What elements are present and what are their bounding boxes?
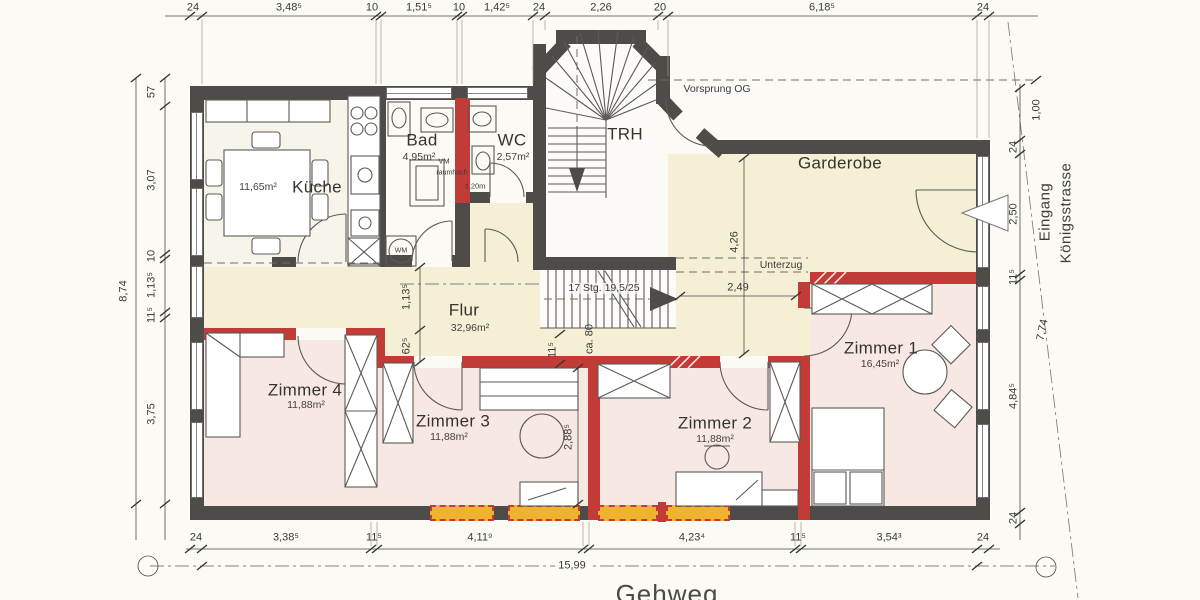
dim-left-total: 8,74: [119, 280, 130, 301]
dim-garderobe-height: 4,26: [730, 231, 741, 252]
vorsprung-og-label: Vorsprung OG: [681, 84, 752, 95]
room-label-bad: Bad: [406, 132, 437, 149]
dim-top-7: 2,26: [590, 3, 611, 14]
room-label-zimmer2: Zimmer 2: [678, 415, 752, 432]
gehweg-label: Gehweg: [616, 581, 719, 600]
room-area-bad: 4,95m²: [403, 152, 436, 163]
dim-right-2: 2,50: [1009, 203, 1020, 224]
room-label-wc: WC: [498, 132, 527, 149]
room-label-zimmer4: Zimmer 4: [268, 382, 342, 399]
stair-spec: 17 Stg. 19,5/25: [566, 283, 641, 294]
zimmer1-furniture: [812, 284, 972, 506]
eingang-label: Eingang: [1038, 183, 1053, 242]
dim-top-3: 1,51⁵: [406, 3, 432, 14]
zimmer3-furniture: [383, 363, 578, 506]
room-label-kueche: Küche: [292, 179, 342, 196]
dim-left-0: 57: [147, 86, 158, 98]
room-area-zimmer3: 11,88m²: [430, 432, 468, 443]
dim-bottom-0: 24: [190, 533, 202, 544]
room-label-trh: TRH: [607, 126, 643, 143]
dim-top-1: 3,48⁵: [276, 3, 302, 14]
dim-flur-left: 1,13⁵: [402, 284, 413, 310]
dim-top-5: 1,42⁵: [484, 3, 510, 14]
vm-note: raumhoch: [436, 170, 467, 177]
dim-right-0: 1,00: [1032, 99, 1043, 120]
plan-linework: [0, 0, 1200, 600]
dim-right-1: 24: [1009, 141, 1020, 153]
dim-zimmer3-height: 2,88⁵: [564, 424, 575, 450]
dim-left-4: 11⁵: [147, 307, 158, 323]
dim-top-10: 24: [977, 3, 989, 14]
dim-top-8: 20: [654, 3, 666, 14]
room-label-flur: Flur: [449, 302, 479, 319]
flur-stair: [540, 270, 678, 328]
dim-top-6: 24: [533, 3, 545, 14]
dim-passage-11: 11⁵: [548, 342, 559, 358]
room-area-flur: 32,96m²: [451, 323, 490, 334]
dim-left-3: 1,13⁵: [147, 272, 158, 298]
room-area-wc: 2,57m²: [497, 152, 530, 163]
room-label-garderobe: Garderobe: [798, 155, 882, 172]
washing-machine-label: WM: [395, 248, 407, 255]
vm-label: VM: [438, 157, 449, 165]
dim-top-9: 6,18⁵: [809, 3, 835, 14]
dim-right-3: 11⁵: [1009, 269, 1020, 285]
dim-bottom-5: 11⁵: [790, 533, 806, 544]
dim-bottom-7: 24: [977, 533, 989, 544]
dim-top-0: 24: [187, 3, 199, 14]
room-area-zimmer4: 11,88m²: [287, 400, 325, 411]
dim-passage-ca80: ca. 80: [585, 324, 596, 354]
room-area-zimmer1: 16,45m²: [861, 359, 900, 370]
room-label-zimmer3: Zimmer 3: [416, 413, 490, 430]
unterzug-label: Unterzug: [758, 260, 805, 271]
dim-left-2: 10: [147, 250, 158, 262]
entrance-arrow: [962, 195, 1008, 231]
floor-plan: 11,65m² Küche Bad 4,95m² WC 2,57m² TRH G…: [0, 0, 1200, 600]
dim-bottom-total: 15,99: [555, 561, 589, 572]
dim-passage-62: 62⁵: [402, 338, 413, 355]
dim-top-4: 10: [453, 3, 465, 14]
room-area-zimmer2: 11,88m²: [696, 434, 734, 445]
room-label-zimmer1: Zimmer 1: [844, 340, 918, 357]
dim-bottom-2: 11⁵: [366, 533, 382, 544]
dim-right-5: 24: [1009, 512, 1020, 524]
dim-top-2: 10: [366, 3, 378, 14]
room-area-kueche: 11,65m²: [239, 182, 277, 193]
dim-left-1: 3,07: [147, 169, 158, 190]
dim-bottom-6: 3,54³: [876, 533, 901, 544]
dim-bottom-3: 4,11⁹: [467, 533, 492, 544]
dim-bottom-4: 4,23⁴: [679, 533, 705, 544]
vm-height: 1,20m: [465, 182, 486, 190]
dim-left-5: 3,75: [147, 403, 158, 424]
dim-bottom-1: 3,38⁵: [273, 533, 299, 544]
street-label: Königsstrasse: [1059, 163, 1074, 264]
dim-right-4: 4,84⁵: [1009, 383, 1020, 409]
dim-garderobe-width: 2,49: [727, 283, 748, 294]
wc-fixtures: [468, 106, 496, 174]
